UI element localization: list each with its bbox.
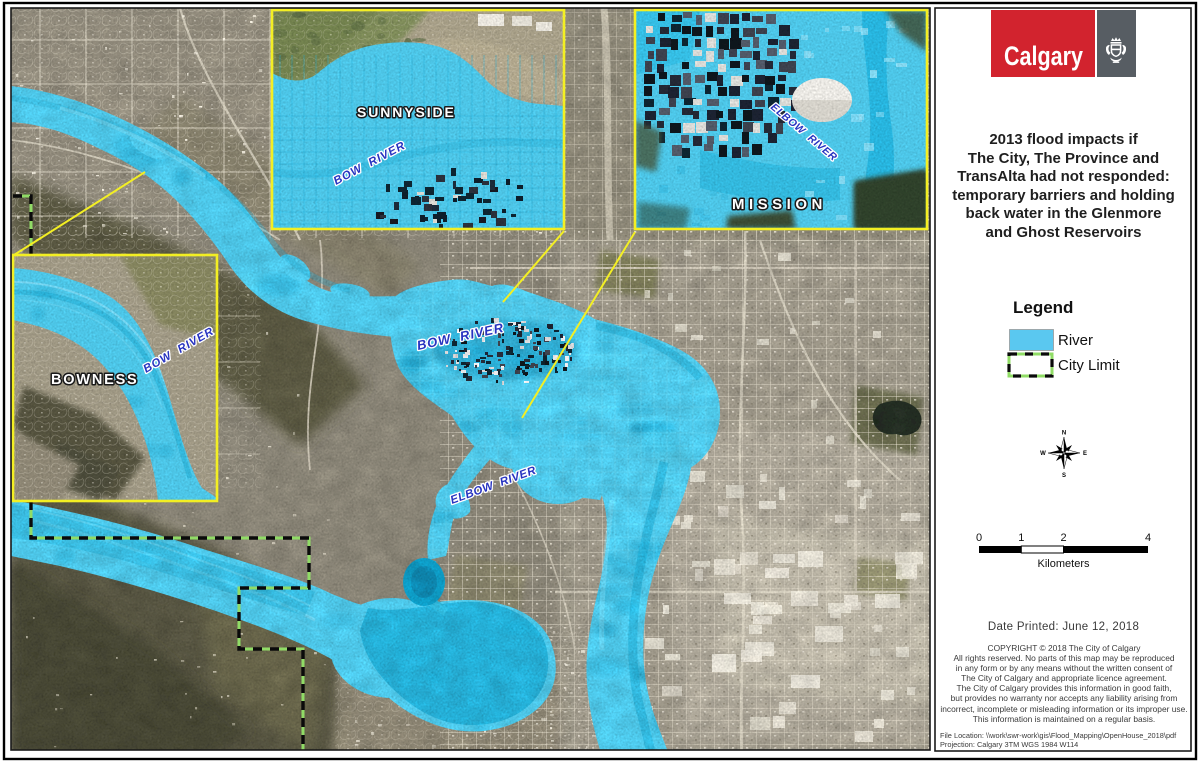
svg-text:SUNNYSIDE: SUNNYSIDE [357, 104, 456, 120]
svg-text:MISSION: MISSION [732, 196, 827, 213]
svg-text:2: 2 [1060, 532, 1066, 544]
svg-text:0: 0 [976, 532, 982, 544]
svg-text:N: N [1062, 431, 1066, 437]
svg-text:W: W [1040, 451, 1046, 457]
svg-text:Kilometers: Kilometers [1038, 558, 1090, 570]
svg-text:Calgary: Calgary [1004, 41, 1083, 71]
svg-text:1: 1 [1018, 532, 1024, 544]
svg-text:4: 4 [1145, 532, 1151, 544]
svg-text:BOWNESS: BOWNESS [51, 372, 139, 388]
svg-text:E: E [1083, 451, 1087, 457]
svg-text:S: S [1062, 473, 1066, 479]
